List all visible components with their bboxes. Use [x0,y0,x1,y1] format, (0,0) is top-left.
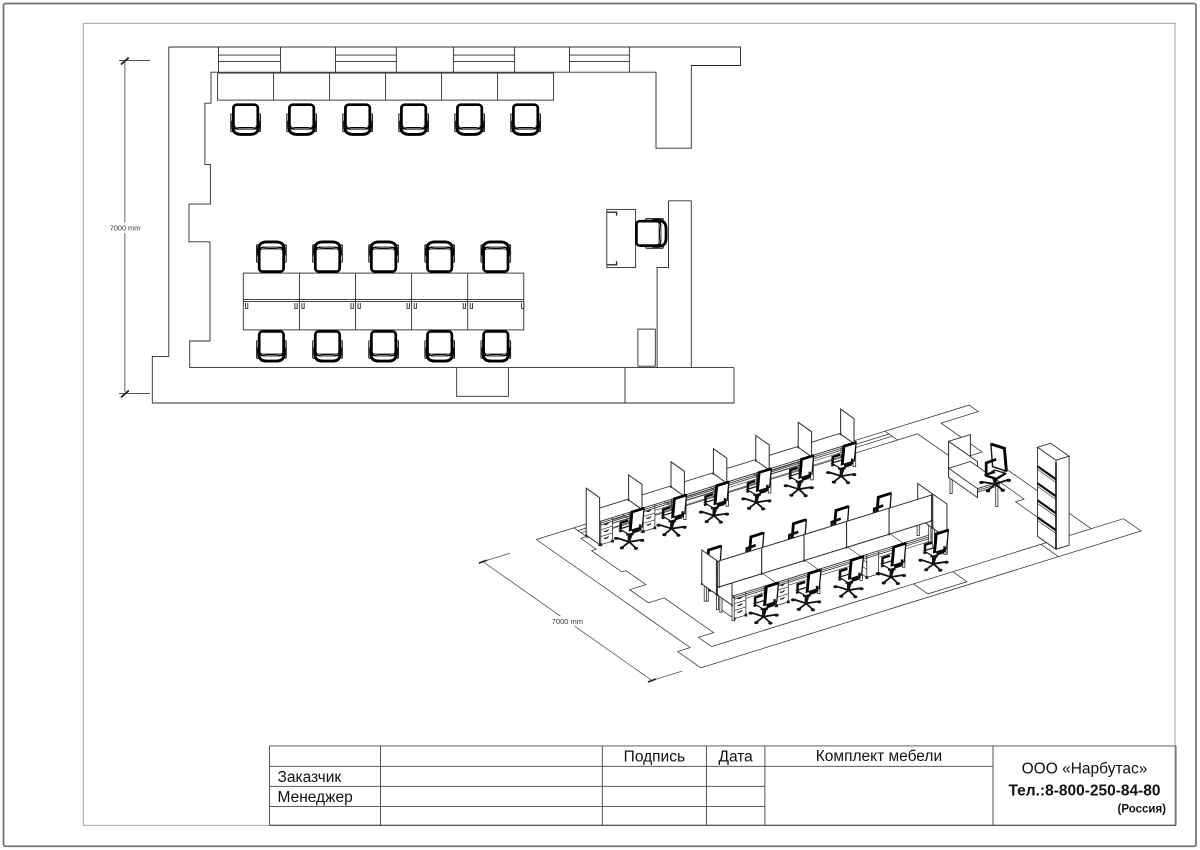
svg-text:Заказчик: Заказчик [278,769,342,786]
svg-text:(Россия): (Россия) [1118,804,1167,816]
svg-text:ООО «Нарбутас»: ООО «Нарбутас» [1022,761,1148,778]
svg-text:7000 mm: 7000 mm [552,617,583,626]
svg-text:Комплект мебели: Комплект мебели [816,748,942,765]
svg-text:Тел.:8-800-250-84-80: Тел.:8-800-250-84-80 [1008,783,1160,800]
svg-text:Менеджер: Менеджер [278,789,353,806]
svg-text:7000 mm: 7000 mm [110,224,140,233]
svg-text:Дата: Дата [718,749,753,766]
svg-text:Подпись: Подпись [624,749,685,766]
